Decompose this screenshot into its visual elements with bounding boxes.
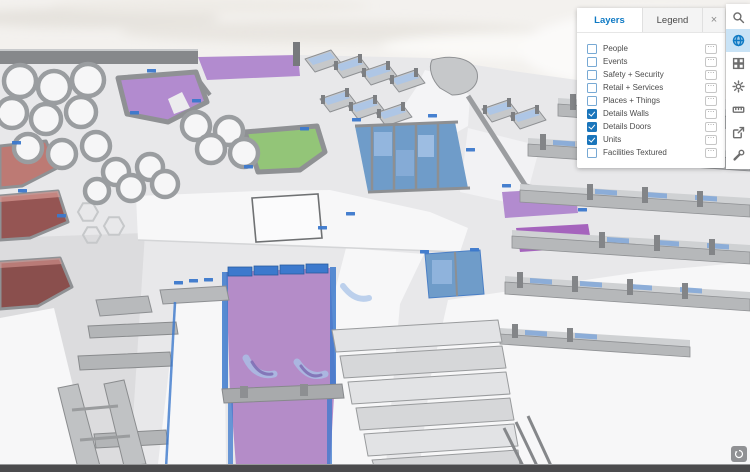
layer-row-safety-security: Safety + Security ⋯ [587,68,717,81]
panel-tabs: Layers Legend × [577,8,725,33]
layer-options-icon[interactable]: ⋯ [705,57,717,67]
export-icon[interactable] [726,121,750,144]
layer-checkbox[interactable] [587,57,597,67]
layer-label: Places + Things [603,96,705,105]
layer-options-icon[interactable]: ⋯ [705,96,717,106]
layer-row-details-walls: Details Walls ⋯ [587,107,717,120]
search-icon[interactable] [726,6,750,29]
room-purple-top [198,55,300,80]
layer-options-icon[interactable]: ⋯ [705,135,717,145]
layer-row-events: Events ⋯ [587,55,717,68]
layer-checkbox[interactable] [587,148,597,158]
layer-options-icon[interactable]: ⋯ [705,44,717,54]
layers-panel: Layers Legend × People ⋯ Events ⋯ Safety… [577,8,725,168]
layer-label: Facilities Textured [603,148,705,157]
tab-legend[interactable]: Legend [642,8,702,32]
layer-checkbox[interactable] [587,122,597,132]
layer-row-places-things: Places + Things ⋯ [587,94,717,107]
measure-icon[interactable] [726,98,750,121]
layer-checkbox[interactable] [587,96,597,106]
layer-label: Safety + Security [603,70,705,79]
layer-checkbox[interactable] [587,109,597,119]
layer-checkbox[interactable] [587,70,597,80]
layer-checkbox[interactable] [587,44,597,54]
close-icon[interactable]: × [702,8,725,32]
layer-row-people: People ⋯ [587,42,717,55]
layer-list: People ⋯ Events ⋯ Safety + Security ⋯ Re… [577,33,725,168]
layer-label: Details Doors [603,122,705,131]
room-outline-white [252,194,322,242]
globe-icon[interactable] [726,29,750,52]
layer-row-facilities-textured: Facilities Textured ⋯ [587,146,717,159]
layer-row-details-doors: Details Doors ⋯ [587,120,717,133]
layer-options-icon[interactable]: ⋯ [705,122,717,132]
layer-checkbox[interactable] [587,135,597,145]
layer-options-icon[interactable]: ⋯ [705,109,717,119]
map-viewer-window: Layers Legend × People ⋯ Events ⋯ Safety… [0,0,750,472]
compass-reset-icon[interactable] [731,446,747,462]
layer-label: Retail + Services [603,83,705,92]
layer-label: Details Walls [603,109,705,118]
bottom-bar [0,464,750,472]
layer-label: People [603,44,705,53]
tab-layers[interactable]: Layers [577,8,642,32]
gear-icon[interactable] [726,75,750,98]
layer-options-icon[interactable]: ⋯ [705,83,717,93]
layer-row-units: Units ⋯ [587,133,717,146]
wrench-icon[interactable] [726,144,750,167]
layer-checkbox[interactable] [587,83,597,93]
side-toolbar [726,4,750,169]
basemap-grid-icon[interactable] [726,52,750,75]
layer-options-icon[interactable]: ⋯ [705,70,717,80]
layer-row-retail-services: Retail + Services ⋯ [587,81,717,94]
layer-label: Events [603,57,705,66]
layer-options-icon[interactable]: ⋯ [705,148,717,158]
layer-label: Units [603,135,705,144]
